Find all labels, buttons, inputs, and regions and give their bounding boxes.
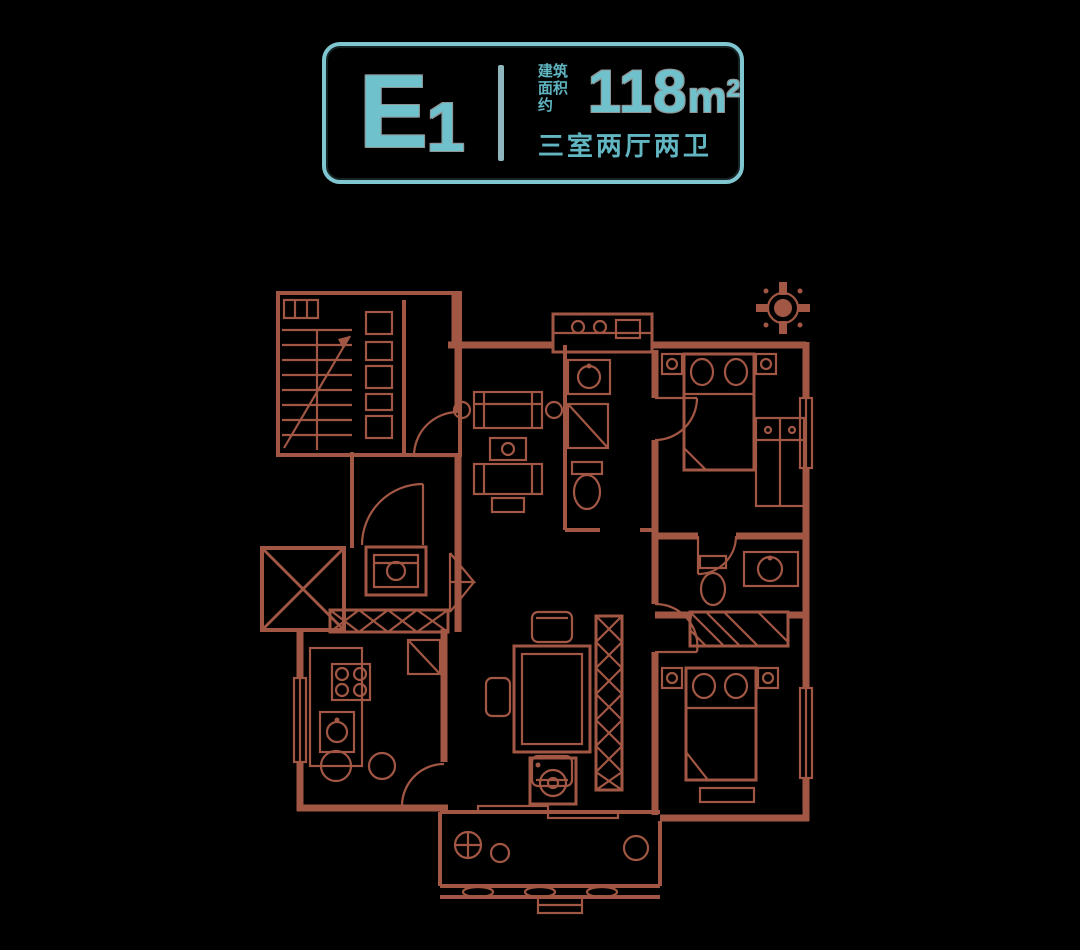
nightstand bbox=[756, 354, 776, 374]
bed1-door-arc bbox=[655, 398, 697, 440]
elevator bbox=[262, 548, 344, 630]
pillow bbox=[725, 359, 747, 385]
sliding-door bbox=[548, 812, 618, 818]
toilet bbox=[701, 573, 725, 605]
bedroom-2 bbox=[655, 604, 788, 802]
hatched-wall-dining bbox=[596, 616, 622, 790]
balcony-table bbox=[624, 836, 648, 860]
balcony bbox=[440, 806, 660, 913]
compass-north-icon bbox=[756, 282, 810, 334]
duct-shafts bbox=[352, 293, 455, 548]
dining-room bbox=[486, 612, 622, 790]
sliding-door bbox=[478, 806, 548, 812]
kitchen bbox=[310, 640, 444, 806]
pillow bbox=[693, 674, 715, 698]
double-door bbox=[450, 553, 474, 612]
bedroom-1 bbox=[655, 354, 804, 506]
bench bbox=[700, 788, 754, 802]
bathroom-sink bbox=[578, 366, 600, 388]
bathroom-2 bbox=[698, 536, 798, 605]
floorplan-page: E 1 建筑 面积约 118 m2 三室两厅两卫 bbox=[0, 0, 1080, 950]
dining-chair bbox=[532, 612, 572, 642]
floorplan-drawing bbox=[0, 0, 1080, 950]
toilet-tank bbox=[572, 462, 602, 474]
kitchen-door-arc bbox=[402, 764, 444, 806]
toilet bbox=[574, 475, 600, 509]
bathroom-sink bbox=[758, 557, 782, 581]
coffee-table bbox=[490, 438, 526, 460]
nightstand bbox=[662, 354, 682, 374]
pillow bbox=[725, 674, 747, 698]
wardrobe-2 bbox=[690, 612, 788, 646]
nightstand bbox=[662, 668, 682, 688]
entry-door-arc bbox=[362, 484, 423, 545]
staircase bbox=[278, 293, 460, 455]
nightstand bbox=[758, 668, 778, 688]
living-door-arc bbox=[414, 412, 458, 456]
dining-table bbox=[514, 646, 590, 752]
hatched-wall-entry bbox=[330, 610, 448, 632]
dining-chair bbox=[486, 678, 510, 716]
stool bbox=[369, 753, 395, 779]
rug bbox=[492, 498, 524, 512]
second-bed bbox=[686, 668, 756, 780]
bathroom-1 bbox=[568, 360, 610, 509]
living-room bbox=[414, 392, 562, 512]
side-stool bbox=[546, 402, 562, 418]
pillow bbox=[691, 359, 713, 385]
plant bbox=[491, 844, 509, 862]
